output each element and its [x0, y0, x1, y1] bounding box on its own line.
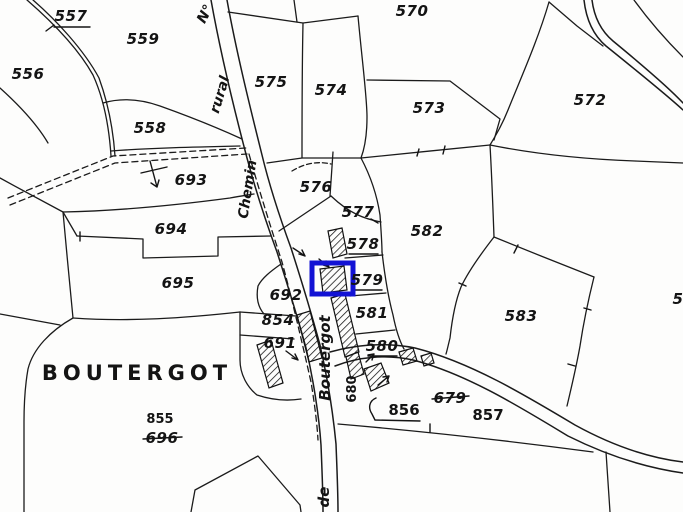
- parcel-label-695: 695: [162, 274, 195, 292]
- parcel-label-572: 572: [574, 91, 607, 109]
- parcel-label-574: 574: [315, 81, 348, 99]
- arrow: [286, 351, 298, 360]
- building: [421, 353, 434, 366]
- parcel-label-857: 857: [472, 406, 503, 424]
- parcel-label-557: 557: [55, 7, 88, 25]
- parcel-label-5-partial: 5: [673, 290, 683, 308]
- parcel-label-573: 573: [413, 99, 446, 117]
- parcel-label-854: 854: [262, 311, 295, 329]
- building: [399, 348, 417, 365]
- place-label-boutergot: BOUTERGOT: [42, 361, 232, 385]
- parcel-label-575: 575: [255, 73, 288, 91]
- street-label-de: de: [315, 487, 333, 508]
- parcel-label-679: 679: [434, 389, 467, 407]
- arrow: [293, 248, 305, 256]
- parcel-label-856: 856: [388, 401, 419, 419]
- cadastral-map-viewport[interactable]: 557 559 556 558 570 575 574 573 572 693 …: [0, 0, 683, 512]
- parcel-label-693: 693: [175, 171, 208, 189]
- buildings: [257, 228, 434, 391]
- street-label-boutergot: Boutergot: [316, 314, 334, 400]
- parcel-label-559: 559: [127, 30, 160, 48]
- parcel-label-692: 692: [270, 286, 303, 304]
- parcel-label-578: 578: [347, 235, 380, 253]
- cross-symbol: [141, 161, 167, 187]
- parcel-label-581: 581: [356, 304, 389, 322]
- building-highlighted: [320, 266, 347, 293]
- cadastral-map[interactable]: 557 559 556 558 570 575 574 573 572 693 …: [0, 0, 683, 512]
- parcel-label-580: 580: [366, 337, 399, 355]
- parcel-label-691: 691: [264, 334, 297, 352]
- parcel-label-576: 576: [300, 178, 333, 196]
- street-label-chemin: Chemin: [236, 159, 261, 220]
- parcel-label-579: 579: [351, 271, 384, 289]
- parcel-label-556: 556: [12, 65, 45, 83]
- parcel-label-582: 582: [411, 222, 444, 240]
- street-label-road-number: N°: [194, 2, 217, 26]
- parcel-label-558: 558: [134, 119, 167, 137]
- parcel-label-577: 577: [342, 203, 375, 221]
- parcel-label-570: 570: [396, 2, 429, 20]
- street-label-rural: rural: [207, 74, 233, 115]
- number-leader: [46, 25, 54, 31]
- parcel-label-694: 694: [155, 220, 188, 238]
- parcel-label-855: 855: [146, 412, 173, 427]
- parcel-label-680: 680: [345, 375, 360, 402]
- building: [346, 352, 364, 379]
- road-lines: [27, 0, 683, 512]
- parcel-label-583: 583: [505, 307, 538, 325]
- parcel-label-696: 696: [146, 429, 179, 447]
- building: [328, 228, 347, 258]
